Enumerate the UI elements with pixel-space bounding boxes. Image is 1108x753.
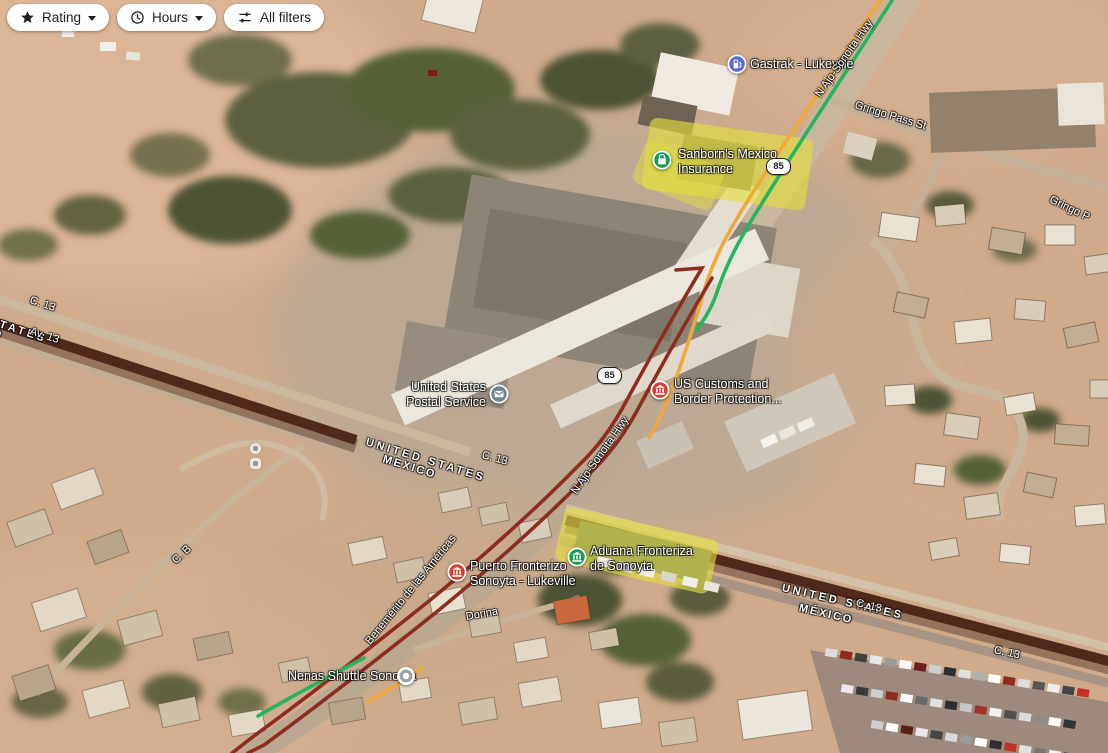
mail-icon <box>489 384 509 404</box>
tune-icon <box>237 10 253 25</box>
puerto-label-line2: Sonoyta - Lukeville <box>470 574 576 589</box>
cbp-marker[interactable] <box>650 380 670 400</box>
sanborns-marker[interactable] <box>652 150 672 170</box>
minor-poi-icon[interactable] <box>250 458 261 469</box>
government-icon <box>567 547 587 567</box>
minor-poi-icon[interactable] <box>250 443 261 454</box>
usps-marker[interactable] <box>489 384 509 404</box>
aduana-marker[interactable] <box>567 547 587 567</box>
fuel-icon <box>727 54 747 74</box>
puerto-fronterizo-label[interactable]: Puerto Fronterizo Sonoyta - Lukeville <box>470 559 576 589</box>
aduana-label[interactable]: Aduana Fronteriza de Sonoyta <box>590 544 693 574</box>
clock-icon <box>130 10 145 25</box>
chevron-down-icon <box>195 16 203 21</box>
cbp-label-line2: Border Protection... <box>674 392 782 407</box>
filter-bar: Rating Hours All filters <box>7 4 324 31</box>
sanborns-label-line2: Insurance <box>678 162 777 177</box>
rating-chip-label: Rating <box>42 10 81 25</box>
usps-label[interactable]: United States Postal Service <box>398 380 486 410</box>
puerto-fronterizo-marker[interactable] <box>447 562 467 582</box>
aduana-label-line1: Aduana Fronteriza <box>590 544 693 559</box>
nenas-marker[interactable] <box>396 666 416 686</box>
star-icon <box>20 10 35 25</box>
cbp-label[interactable]: US Customs and Border Protection... <box>674 377 782 407</box>
sanborns-label[interactable]: Sanborn's Mexico Insurance <box>678 147 777 177</box>
route-85-shield: 85 <box>597 367 622 384</box>
usps-label-line1: United States <box>398 380 486 395</box>
rating-filter-chip[interactable]: Rating <box>7 4 109 31</box>
route-85-shield-text: 85 <box>604 370 615 381</box>
hours-filter-chip[interactable]: Hours <box>117 4 216 31</box>
chevron-down-icon <box>88 16 96 21</box>
usps-label-line2: Postal Service <box>398 395 486 410</box>
aduana-label-line2: de Sonoyta <box>590 559 693 574</box>
government-icon <box>447 562 467 582</box>
cbp-label-line1: US Customs and <box>674 377 782 392</box>
satellite-imagery <box>0 0 1108 753</box>
puerto-label-line1: Puerto Fronterizo <box>470 559 576 574</box>
shopping-icon <box>652 150 672 170</box>
all-filters-chip-label: All filters <box>260 10 311 25</box>
gastrak-marker[interactable] <box>727 54 747 74</box>
route-85-shield: 85 <box>766 158 791 175</box>
sanborns-label-line1: Sanborn's Mexico <box>678 147 777 162</box>
route-85-shield-text: 85 <box>773 161 784 172</box>
government-icon <box>650 380 670 400</box>
map-canvas[interactable]: Gastrak - Lukeville N Ajo-Sonoita Hwy Gr… <box>0 0 1108 753</box>
place-icon <box>396 666 416 686</box>
all-filters-chip[interactable]: All filters <box>224 4 324 31</box>
hours-chip-label: Hours <box>152 10 188 25</box>
